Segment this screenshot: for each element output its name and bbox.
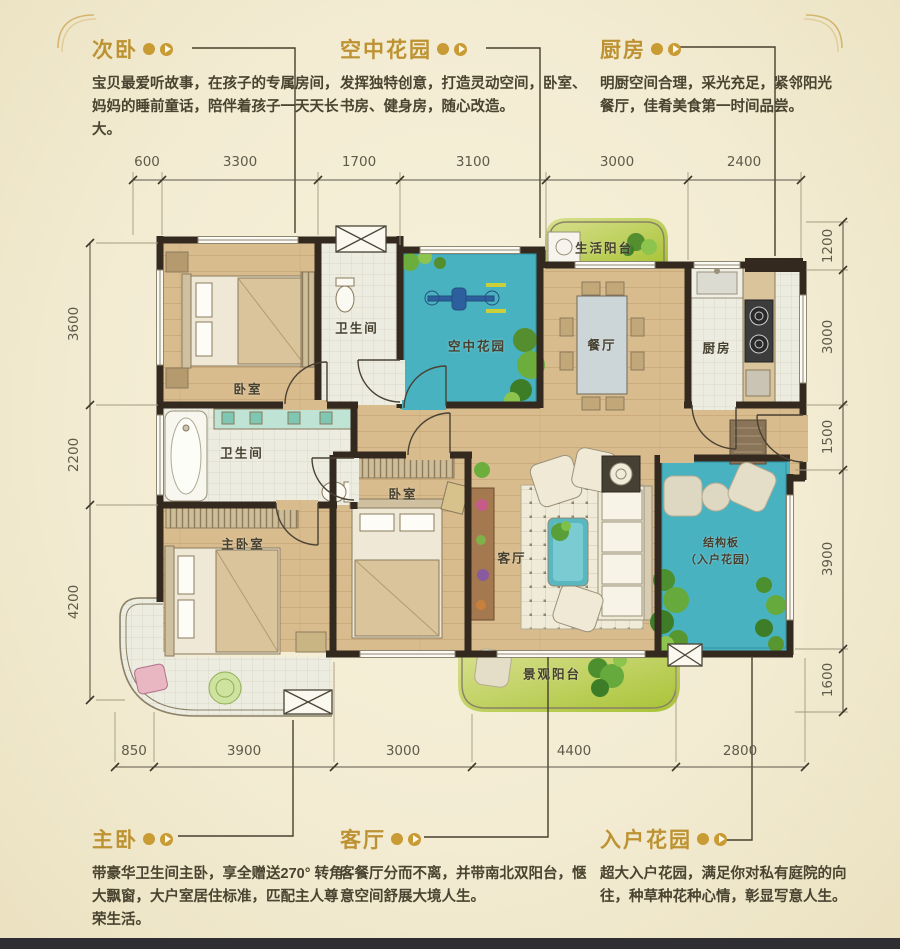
dim-top-3300: 3300 xyxy=(223,154,257,170)
dim-right-3000: 3000 xyxy=(820,320,836,354)
caption-title: 厨房 xyxy=(600,34,646,64)
caption-body: 超大入户花园，满足你对私有庭院的向往，种草种花种心情，彰显写意人生。 xyxy=(600,863,858,909)
caption-kitchen: 厨房 明厨空间合理，采光充足，紧邻阳光餐厅，佳肴美食第一时间品尝。 xyxy=(600,34,840,119)
caption-sky-garden: 空中花园 发挥独特创意，打造灵动空间，卧室、书房、健身房，随心改造。 xyxy=(340,34,592,119)
dim-bottom-2800: 2800 xyxy=(723,743,757,759)
caption-title: 次卧 xyxy=(92,34,138,64)
dim-top-3000: 3000 xyxy=(600,154,634,170)
bottom-edge-bar xyxy=(0,938,900,949)
dim-bottom-3900: 3900 xyxy=(227,743,261,759)
caption-body: 宝贝最爱听故事，在孩子的专属房间，妈妈的睡前童话，陪伴着孩子一天天长大。 xyxy=(92,73,344,143)
room-label-living: 客厅 xyxy=(497,548,526,567)
room-label-dining: 餐厅 xyxy=(587,335,616,354)
caption-title: 主卧 xyxy=(92,824,138,854)
toilet-top xyxy=(336,278,354,312)
dim-right-1200: 1200 xyxy=(820,229,836,263)
room-label-life-balcony: 生活阳台 xyxy=(575,238,633,257)
caption-second-bedroom: 次卧 宝贝最爱听故事，在孩子的专属房间，妈妈的睡前童话，陪伴着孩子一天天长大。 xyxy=(92,34,344,143)
room-label-bathroom-master: 卫生间 xyxy=(220,443,264,462)
room-label-sky-garden: 空中花园 xyxy=(448,336,506,355)
caption-title-row: 厨房 xyxy=(600,34,840,64)
dim-top-1700: 1700 xyxy=(342,154,376,170)
caption-title-row: 次卧 xyxy=(92,34,344,64)
dot-icon xyxy=(391,833,403,845)
dim-right-3900: 3900 xyxy=(820,542,836,576)
caption-living-room: 客厅 客餐厅分而不离，并带南北双阳台，惬意空间舒展大境人生。 xyxy=(340,824,592,909)
play-icon xyxy=(160,43,173,56)
room-label-bedroom-middle: 卧室 xyxy=(388,484,417,503)
dim-top-600: 600 xyxy=(134,154,160,170)
room-label-view-balcony: 景观阳台 xyxy=(523,664,581,683)
dim-top-3100: 3100 xyxy=(456,154,490,170)
play-icon xyxy=(714,833,727,846)
caption-title-row: 主卧 xyxy=(92,824,344,854)
dot-icon xyxy=(697,833,709,845)
caption-master-bedroom: 主卧 带豪华卫生间主卧，享全赠送270° 转角大飘窗，大户室居住标准，匹配主人尊… xyxy=(92,824,344,933)
caption-title-row: 客厅 xyxy=(340,824,592,854)
play-icon xyxy=(160,833,173,846)
room-label-entry-garden-line2: （入户花园） xyxy=(685,551,757,567)
dim-bottom-4400: 4400 xyxy=(557,743,591,759)
caption-body: 带豪华卫生间主卧，享全赠送270° 转角大飘窗，大户室居住标准，匹配主人尊荣生活… xyxy=(92,863,344,933)
dim-right-1500: 1500 xyxy=(820,420,836,454)
caption-title: 客厅 xyxy=(340,824,386,854)
dot-icon xyxy=(143,43,155,55)
play-icon xyxy=(668,43,681,56)
room-label-entry-garden-line1: 结构板 xyxy=(703,534,739,550)
caption-title: 入户花园 xyxy=(600,824,692,854)
caption-body: 客餐厅分而不离，并带南北双阳台，惬意空间舒展大境人生。 xyxy=(340,863,592,909)
dot-icon xyxy=(437,43,449,55)
dim-bottom-850: 850 xyxy=(121,743,147,759)
dot-icon xyxy=(143,833,155,845)
dim-left-4200: 4200 xyxy=(66,585,82,619)
dim-bottom-3000: 3000 xyxy=(386,743,420,759)
caption-title: 空中花园 xyxy=(340,34,432,64)
room-label-bathroom-top: 卫生间 xyxy=(335,318,379,337)
caption-title-row: 空中花园 xyxy=(340,34,592,64)
dim-right-1600: 1600 xyxy=(820,663,836,697)
dim-top-2400: 2400 xyxy=(727,154,761,170)
caption-title-row: 入户花园 xyxy=(600,824,858,854)
room-label-kitchen: 厨房 xyxy=(702,338,731,357)
play-icon xyxy=(454,43,467,56)
dim-left-3600: 3600 xyxy=(66,307,82,341)
dot-icon xyxy=(651,43,663,55)
room-label-master-bedroom: 主卧室 xyxy=(221,534,265,553)
caption-body: 发挥独特创意，打造灵动空间，卧室、书房、健身房，随心改造。 xyxy=(340,73,592,119)
caption-body: 明厨空间合理，采光充足，紧邻阳光餐厅，佳肴美食第一时间品尝。 xyxy=(600,73,840,119)
dim-left-2200: 2200 xyxy=(66,438,82,472)
caption-entry-garden: 入户花园 超大入户花园，满足你对私有庭院的向往，种草种花种心情，彰显写意人生。 xyxy=(600,824,858,909)
room-label-bedroom-top: 卧室 xyxy=(233,379,262,398)
play-icon xyxy=(408,833,421,846)
